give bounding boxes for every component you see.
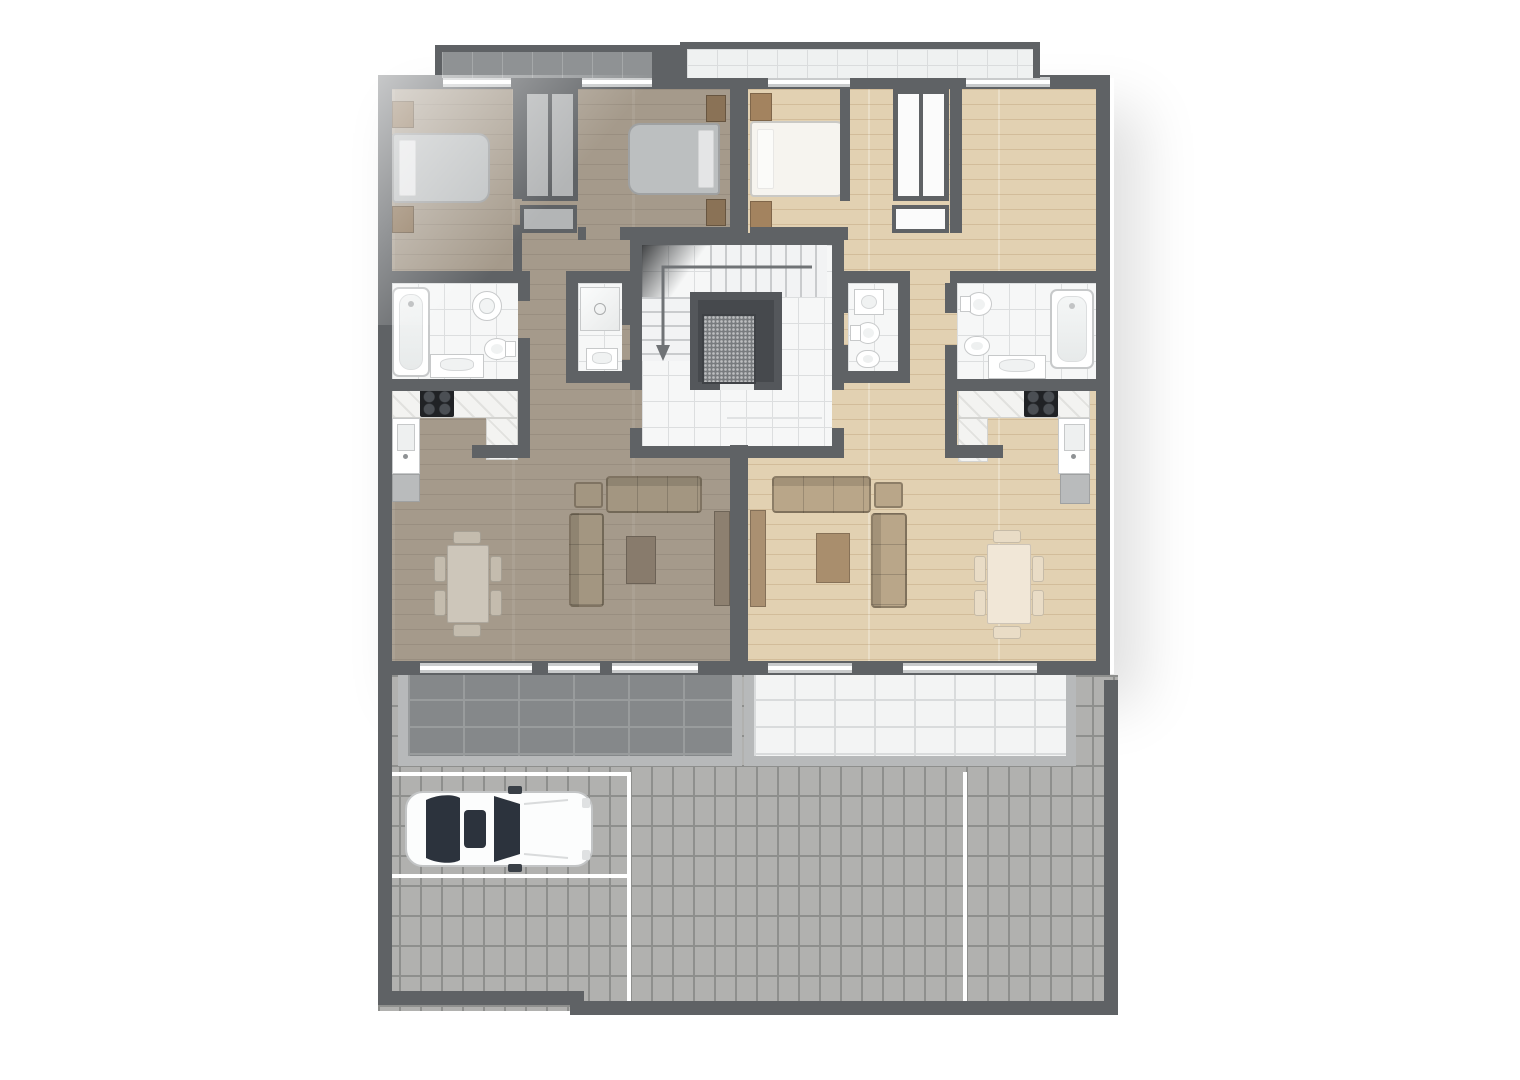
- vanity-sink: [988, 355, 1046, 379]
- wardrobe-low-unit: [892, 205, 949, 233]
- wall-courtyard-bottom-right: [570, 1001, 1118, 1015]
- wall-bathR-bottom: [945, 379, 1110, 391]
- shower: [580, 287, 620, 331]
- chair: [974, 590, 986, 616]
- bidet: [964, 336, 990, 356]
- window: [903, 663, 1037, 673]
- round-washbasin: [472, 291, 502, 321]
- kitchen-counter: [392, 388, 518, 418]
- wall-courtyard-bottom-left: [378, 991, 584, 1005]
- nightstand: [750, 93, 772, 121]
- dining-table: [987, 544, 1031, 624]
- fridge: [392, 474, 420, 502]
- terrace-left-railing: [398, 672, 742, 766]
- window: [443, 77, 511, 87]
- kitchen-sink: [392, 418, 420, 474]
- elevator-car: [702, 314, 756, 384]
- wall-bedroomR-right: [840, 89, 850, 201]
- square-washbasin: [854, 289, 884, 315]
- nightstand: [392, 101, 414, 128]
- window: [582, 77, 660, 87]
- wall-bedroom2-bottom: [578, 227, 586, 240]
- wardrobe-panel: [898, 94, 919, 196]
- bathtub: [1050, 289, 1094, 369]
- wall-bedroomR-bottom: [750, 227, 848, 240]
- nightstand: [750, 201, 772, 229]
- wall-bath-left-top: [392, 271, 518, 283]
- wardrobe: [893, 89, 949, 201]
- terrace-left-floor: [408, 672, 732, 756]
- car: [404, 786, 594, 872]
- chair: [453, 624, 481, 637]
- chair: [993, 626, 1021, 639]
- armchair: [874, 482, 903, 508]
- coffee-table: [626, 536, 656, 584]
- wardrobe-panel: [923, 94, 944, 196]
- car-top-view: [404, 786, 594, 872]
- wall-bath-left-bottom: [392, 379, 530, 391]
- wall-stairwell-left: [630, 245, 642, 390]
- balcony-left: [435, 45, 680, 78]
- chair: [490, 590, 502, 616]
- chair: [453, 531, 481, 544]
- parking-line: [627, 772, 631, 1002]
- window: [612, 663, 698, 673]
- wall-courtyard-right: [1104, 680, 1118, 1015]
- wall-closetR-right: [950, 89, 962, 233]
- wall-outer-left: [378, 75, 392, 675]
- chair: [1032, 556, 1044, 582]
- nightstand: [706, 199, 726, 226]
- kitchen-sink: [1058, 418, 1090, 474]
- wall-bedroom1-right: [513, 89, 522, 199]
- wall-shower-room-bottom: [566, 371, 634, 383]
- wall-outer-right: [1096, 75, 1110, 675]
- wall-wc-bottom: [836, 371, 910, 383]
- toilet: [484, 338, 510, 360]
- parking-line: [385, 772, 629, 776]
- cooktop: [1024, 389, 1058, 417]
- terrace-right-railing: [744, 672, 1076, 766]
- wall-wc-right: [898, 283, 910, 371]
- chair: [490, 556, 502, 582]
- wall-bathR-left: [945, 283, 957, 313]
- terrace-door: [548, 663, 600, 673]
- chair: [434, 556, 446, 582]
- wardrobe-low-unit: [520, 205, 577, 233]
- chair: [434, 590, 446, 616]
- wall-bath-left-right: [518, 271, 530, 301]
- wall-stairwell-left: [630, 428, 642, 446]
- vanity-sink: [430, 354, 484, 378]
- wall-kitchen-left-stub: [472, 445, 530, 458]
- floor-plan: [0, 0, 1520, 1080]
- chaise-sofa: [569, 513, 604, 607]
- sofa: [772, 476, 871, 513]
- terrace-right-floor: [754, 672, 1066, 756]
- chair: [993, 530, 1021, 543]
- nightstand: [706, 95, 726, 122]
- window: [768, 77, 850, 87]
- cooktop: [420, 389, 454, 417]
- chair: [1032, 590, 1044, 616]
- wall-bathR-top: [950, 271, 1110, 283]
- nightstand: [392, 206, 414, 233]
- tv-sideboard: [750, 510, 766, 607]
- wall-wc-left: [836, 283, 848, 313]
- wall-wc-top: [836, 271, 910, 283]
- fridge: [1060, 474, 1090, 504]
- bed-double: [750, 121, 848, 197]
- wall-kitchen-left-right: [518, 391, 530, 447]
- washbasin: [586, 348, 618, 370]
- balcony-divider-pier: [652, 45, 680, 89]
- dining-table: [447, 545, 489, 623]
- parking-line: [385, 874, 629, 878]
- bidet: [856, 350, 880, 368]
- bed-double: [392, 133, 490, 203]
- toilet: [966, 292, 992, 316]
- balcony-right: [680, 42, 1040, 78]
- elevator-shaft: [690, 292, 782, 390]
- wall-courtyard-left: [378, 675, 392, 1005]
- wall-divider-top: [730, 89, 748, 245]
- window: [420, 663, 532, 673]
- elevator-door: [720, 384, 754, 390]
- toilet: [856, 322, 880, 344]
- bathtub: [392, 287, 430, 377]
- stair-guide-line: [727, 417, 822, 419]
- wall-kitchenR-stub: [945, 445, 1003, 458]
- chair: [974, 556, 986, 582]
- wall-stairwell-bottom: [630, 446, 844, 458]
- wall-divider-bottom: [730, 445, 748, 661]
- parking-line: [963, 772, 967, 1002]
- wardrobe-panel: [527, 94, 548, 196]
- terrace-door: [768, 663, 852, 673]
- sofa: [606, 476, 702, 513]
- window: [966, 77, 1050, 87]
- armchair: [574, 482, 603, 508]
- wall-shower-room-top: [566, 271, 634, 283]
- chaise-sofa: [871, 513, 907, 608]
- tv-sideboard: [714, 511, 730, 606]
- wall-kitchenR-left: [945, 391, 957, 447]
- wall-shower-room-left: [566, 271, 578, 383]
- wall-stairwell-right: [832, 428, 844, 446]
- wardrobe: [522, 89, 578, 201]
- wardrobe-panel: [552, 94, 573, 196]
- bed-double: [628, 123, 720, 195]
- coffee-table: [816, 533, 850, 583]
